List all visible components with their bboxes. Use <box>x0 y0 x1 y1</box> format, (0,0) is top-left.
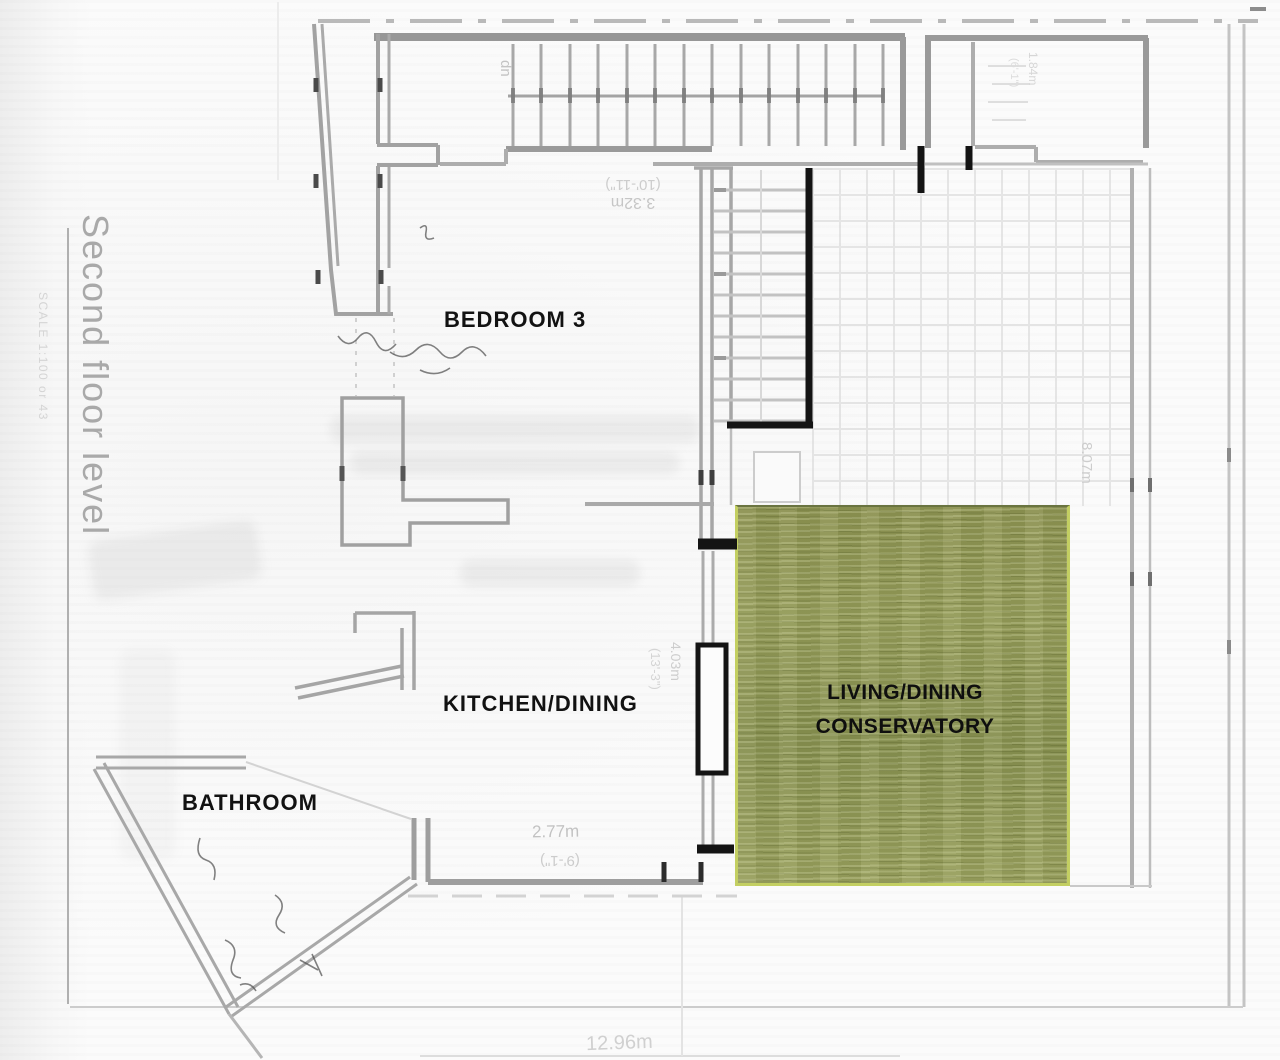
label-conservatory-line1: LIVING/DINING <box>780 676 1030 710</box>
label-bedroom3: BEDROOM 3 <box>444 307 586 333</box>
pencil-scribbles <box>198 226 486 991</box>
corridor-wall-ticks <box>701 470 712 485</box>
dim-store-width-metric: 1.84m <box>1026 52 1040 85</box>
corridor-tread-ticks <box>714 190 726 358</box>
hall-corner-wall <box>355 611 414 690</box>
bathroom-top-wall <box>96 757 246 768</box>
closet-wall-outline <box>342 398 508 545</box>
dim-stair-width: 3.32m (10'-11") <box>558 176 708 211</box>
window-symbol <box>698 645 726 773</box>
scribble <box>338 333 396 351</box>
label-bathroom: BATHROOM <box>182 790 318 816</box>
label-conservatory: LIVING/DINING CONSERVATORY <box>780 676 1030 744</box>
interior-walls <box>295 318 714 698</box>
floorplan-drawing <box>0 0 1280 1060</box>
label-kitchen-dining: KITCHEN/DINING <box>443 691 638 717</box>
bathroom-bottom-diagonal <box>226 877 417 1016</box>
dim-door-height-imperial: (13'-3") <box>648 648 663 690</box>
scribble <box>275 895 285 933</box>
closet-wall-ticks <box>342 466 403 481</box>
bathroom-corner-extension <box>229 1014 262 1058</box>
top-stair-room <box>374 37 921 164</box>
kitchen-left-wall <box>414 818 428 882</box>
scribble <box>225 940 256 991</box>
hall-diagonal-wall <box>295 666 404 698</box>
dim-overall-width: 12.96m <box>586 1031 653 1056</box>
right-boundary-lines <box>1229 24 1244 1007</box>
right-walls <box>1070 168 1152 888</box>
scale-note: SCALE 1:100 or 43 <box>36 292 50 482</box>
scribble <box>198 838 215 880</box>
dim-stair-width-metric: 3.32m <box>558 193 708 211</box>
door-swing-area <box>754 452 800 502</box>
dim-conservatory-depth: 8.07m <box>1078 442 1095 484</box>
scribble <box>390 344 486 373</box>
page-title: Second floor level <box>74 214 116 644</box>
scribble <box>420 226 434 239</box>
dim-door-height-metric: 4.03m <box>668 642 684 681</box>
stair-direction-note: dn <box>497 60 514 77</box>
dim-kitchen-width-imperial: (9'-1") <box>540 852 580 869</box>
bedroom-walls <box>314 24 438 314</box>
label-conservatory-line2: CONSERVATORY <box>780 710 1030 744</box>
dim-stair-width-imperial: (10'-11") <box>558 176 708 193</box>
dim-store-width-imperial: (6'-1") <box>1008 58 1020 87</box>
right-wall-ticks <box>1132 478 1150 586</box>
bedroom-wall-arm <box>377 145 438 165</box>
dim-kitchen-width-metric: 2.77m <box>532 822 580 843</box>
closet-dashed-continuation <box>356 318 394 396</box>
